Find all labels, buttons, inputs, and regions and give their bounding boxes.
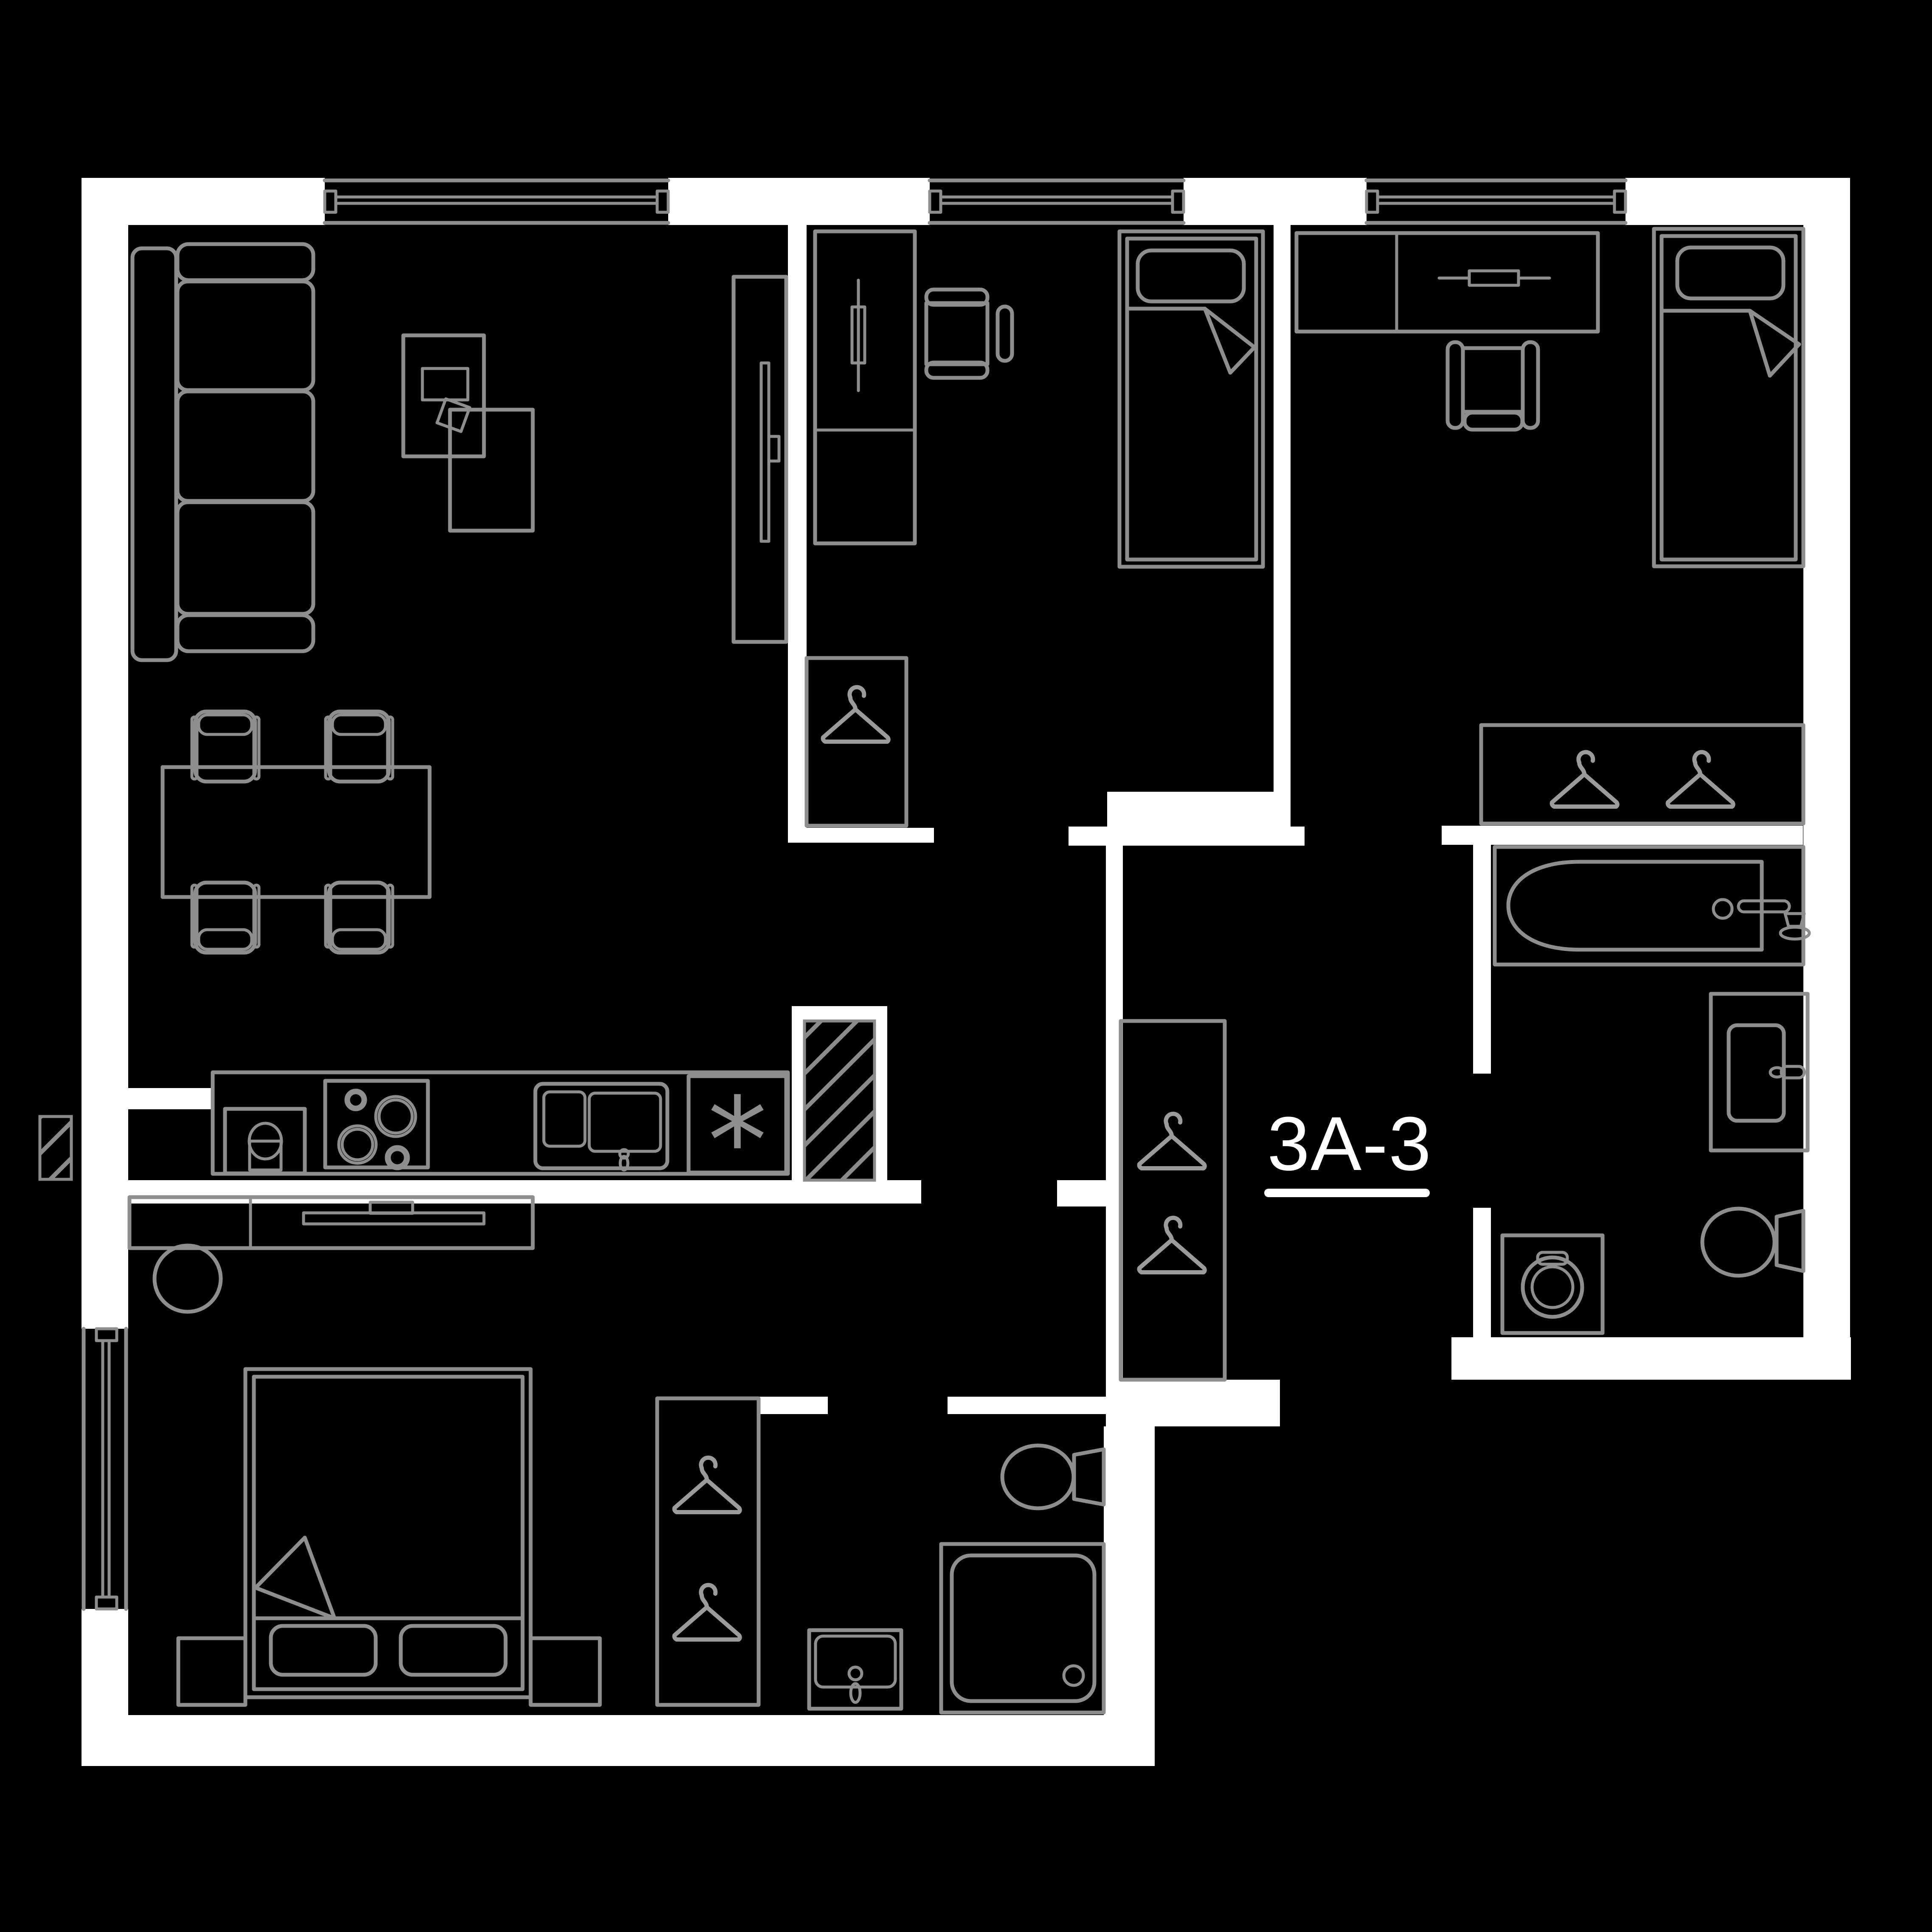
bedroom1-bottom-wall — [788, 828, 934, 843]
unit-label-underline — [1264, 1189, 1430, 1197]
master-bedroom — [129, 1197, 759, 1705]
dining-chair — [192, 883, 259, 953]
bedroom-2 — [1296, 229, 1803, 824]
sofa — [132, 244, 313, 660]
left-wall-upper — [82, 225, 128, 1329]
top-wall-segment-1 — [82, 178, 325, 225]
wardrobe — [815, 231, 915, 543]
dining-table — [163, 767, 430, 897]
smallbath-right-wall — [1104, 1426, 1155, 1715]
nightstand-left — [178, 1638, 245, 1705]
unit-label-text: 3A-3 — [1267, 1101, 1432, 1187]
window-master-bedroom — [84, 1329, 126, 1609]
nightstand-right — [531, 1638, 600, 1705]
sink — [809, 1630, 901, 1709]
unit-label: 3A-3 — [1264, 1101, 1432, 1197]
top-wall-segment-4 — [1625, 178, 1850, 225]
bathroom-left-wall-lower — [1473, 1208, 1491, 1337]
hanger-icon — [823, 687, 889, 742]
double-bed — [245, 1369, 531, 1697]
partition-living-bedroom1 — [788, 225, 807, 843]
bathroom-main — [1495, 847, 1809, 1333]
floor-plan-page: * 3A-3 — [0, 0, 1932, 1932]
hanger-icon — [1668, 752, 1733, 807]
hall-top-block — [1107, 792, 1291, 827]
hall-closet — [1121, 1021, 1225, 1380]
single-bed — [1654, 229, 1803, 566]
closet-bottom-band-wall — [1106, 1380, 1280, 1426]
bathroom-left-wall-upper — [1473, 845, 1491, 1074]
toilet — [1002, 1445, 1104, 1508]
hallway — [1121, 1021, 1225, 1380]
hanger-icon — [675, 1458, 740, 1512]
dining-chair — [192, 711, 259, 782]
fridge-asterisk-icon: * — [708, 1072, 767, 1211]
kitchen-stub-wall — [128, 1088, 213, 1109]
top-wall-segment-3 — [1184, 178, 1367, 225]
base-cabinet-sink — [225, 1109, 305, 1173]
smallbath-top-wall-right — [948, 1397, 1121, 1414]
windows — [84, 180, 1625, 1609]
master-closet — [657, 1398, 759, 1705]
partition-bedroom1-bedroom2 — [1274, 225, 1291, 792]
toilet — [1702, 1209, 1803, 1276]
hanger-icon — [1139, 1218, 1205, 1272]
hanger-icon — [1139, 1114, 1205, 1168]
kitchen-counter — [213, 1072, 788, 1174]
ventilation-shaft-icon — [804, 1021, 875, 1180]
right-wall — [1803, 225, 1850, 1346]
bottom-wall-bathroom — [1451, 1337, 1851, 1380]
top-wall-segment-2 — [668, 178, 930, 225]
bathtub — [1495, 847, 1809, 965]
bathroom-small — [809, 1445, 1104, 1713]
cooktop — [325, 1081, 428, 1169]
sideboard — [129, 1197, 533, 1248]
side-tables — [403, 335, 533, 531]
hall-top-band — [1069, 827, 1305, 846]
tv-unit — [734, 277, 786, 642]
desk-chair — [1448, 342, 1538, 430]
desk — [1296, 233, 1598, 332]
bottom-wall-left — [82, 1715, 1155, 1766]
shower — [941, 1544, 1104, 1713]
closet — [807, 658, 906, 826]
walls — [82, 178, 1851, 1766]
washbasin — [1711, 994, 1808, 1150]
bedroom-1 — [807, 231, 1263, 826]
single-bed — [1119, 231, 1263, 567]
desk-chair — [926, 290, 1012, 378]
kitchen-sink — [535, 1084, 667, 1170]
wardrobe-hangers — [1481, 725, 1803, 824]
smallbath-top-wall-left — [759, 1397, 828, 1414]
hall-stub-wall — [1057, 1180, 1106, 1206]
stool — [155, 1246, 221, 1312]
dining-set — [163, 711, 430, 953]
small-shaft-icon — [40, 1116, 71, 1179]
hanger-icon — [1552, 752, 1617, 807]
living-room — [132, 244, 786, 953]
hanger-icon — [675, 1585, 740, 1640]
washing-machine — [1502, 1235, 1603, 1333]
dining-chair — [326, 883, 393, 953]
dining-chair — [326, 711, 393, 782]
window-bedroom2 — [1367, 180, 1625, 223]
window-living-room — [325, 180, 668, 223]
bedroom2-bottom-wall — [1442, 826, 1803, 845]
window-bedroom1 — [930, 180, 1184, 223]
floor-plan-canvas: * 3A-3 — [0, 0, 1932, 1932]
